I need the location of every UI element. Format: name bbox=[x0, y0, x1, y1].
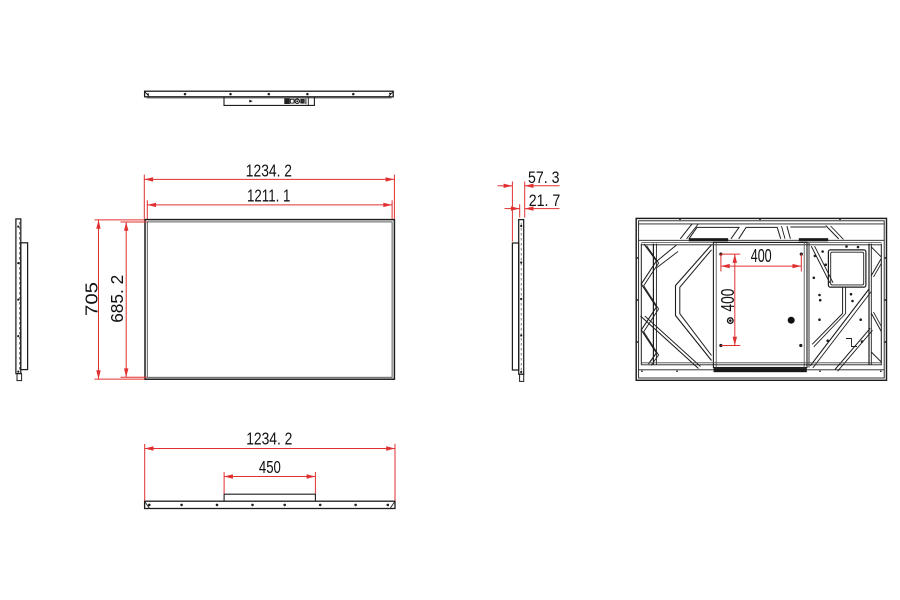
svg-text:1234. 2: 1234. 2 bbox=[246, 160, 292, 180]
svg-text:57. 3: 57. 3 bbox=[528, 168, 560, 187]
svg-text:685. 2: 685. 2 bbox=[107, 275, 127, 323]
svg-text:450: 450 bbox=[259, 457, 281, 477]
svg-text:1234. 2: 1234. 2 bbox=[246, 429, 292, 449]
svg-text:705: 705 bbox=[81, 282, 101, 316]
svg-text:400: 400 bbox=[751, 246, 772, 266]
svg-text:21. 7: 21. 7 bbox=[529, 191, 561, 210]
svg-text:1211. 1: 1211. 1 bbox=[247, 186, 290, 206]
svg-text:400: 400 bbox=[718, 289, 738, 312]
